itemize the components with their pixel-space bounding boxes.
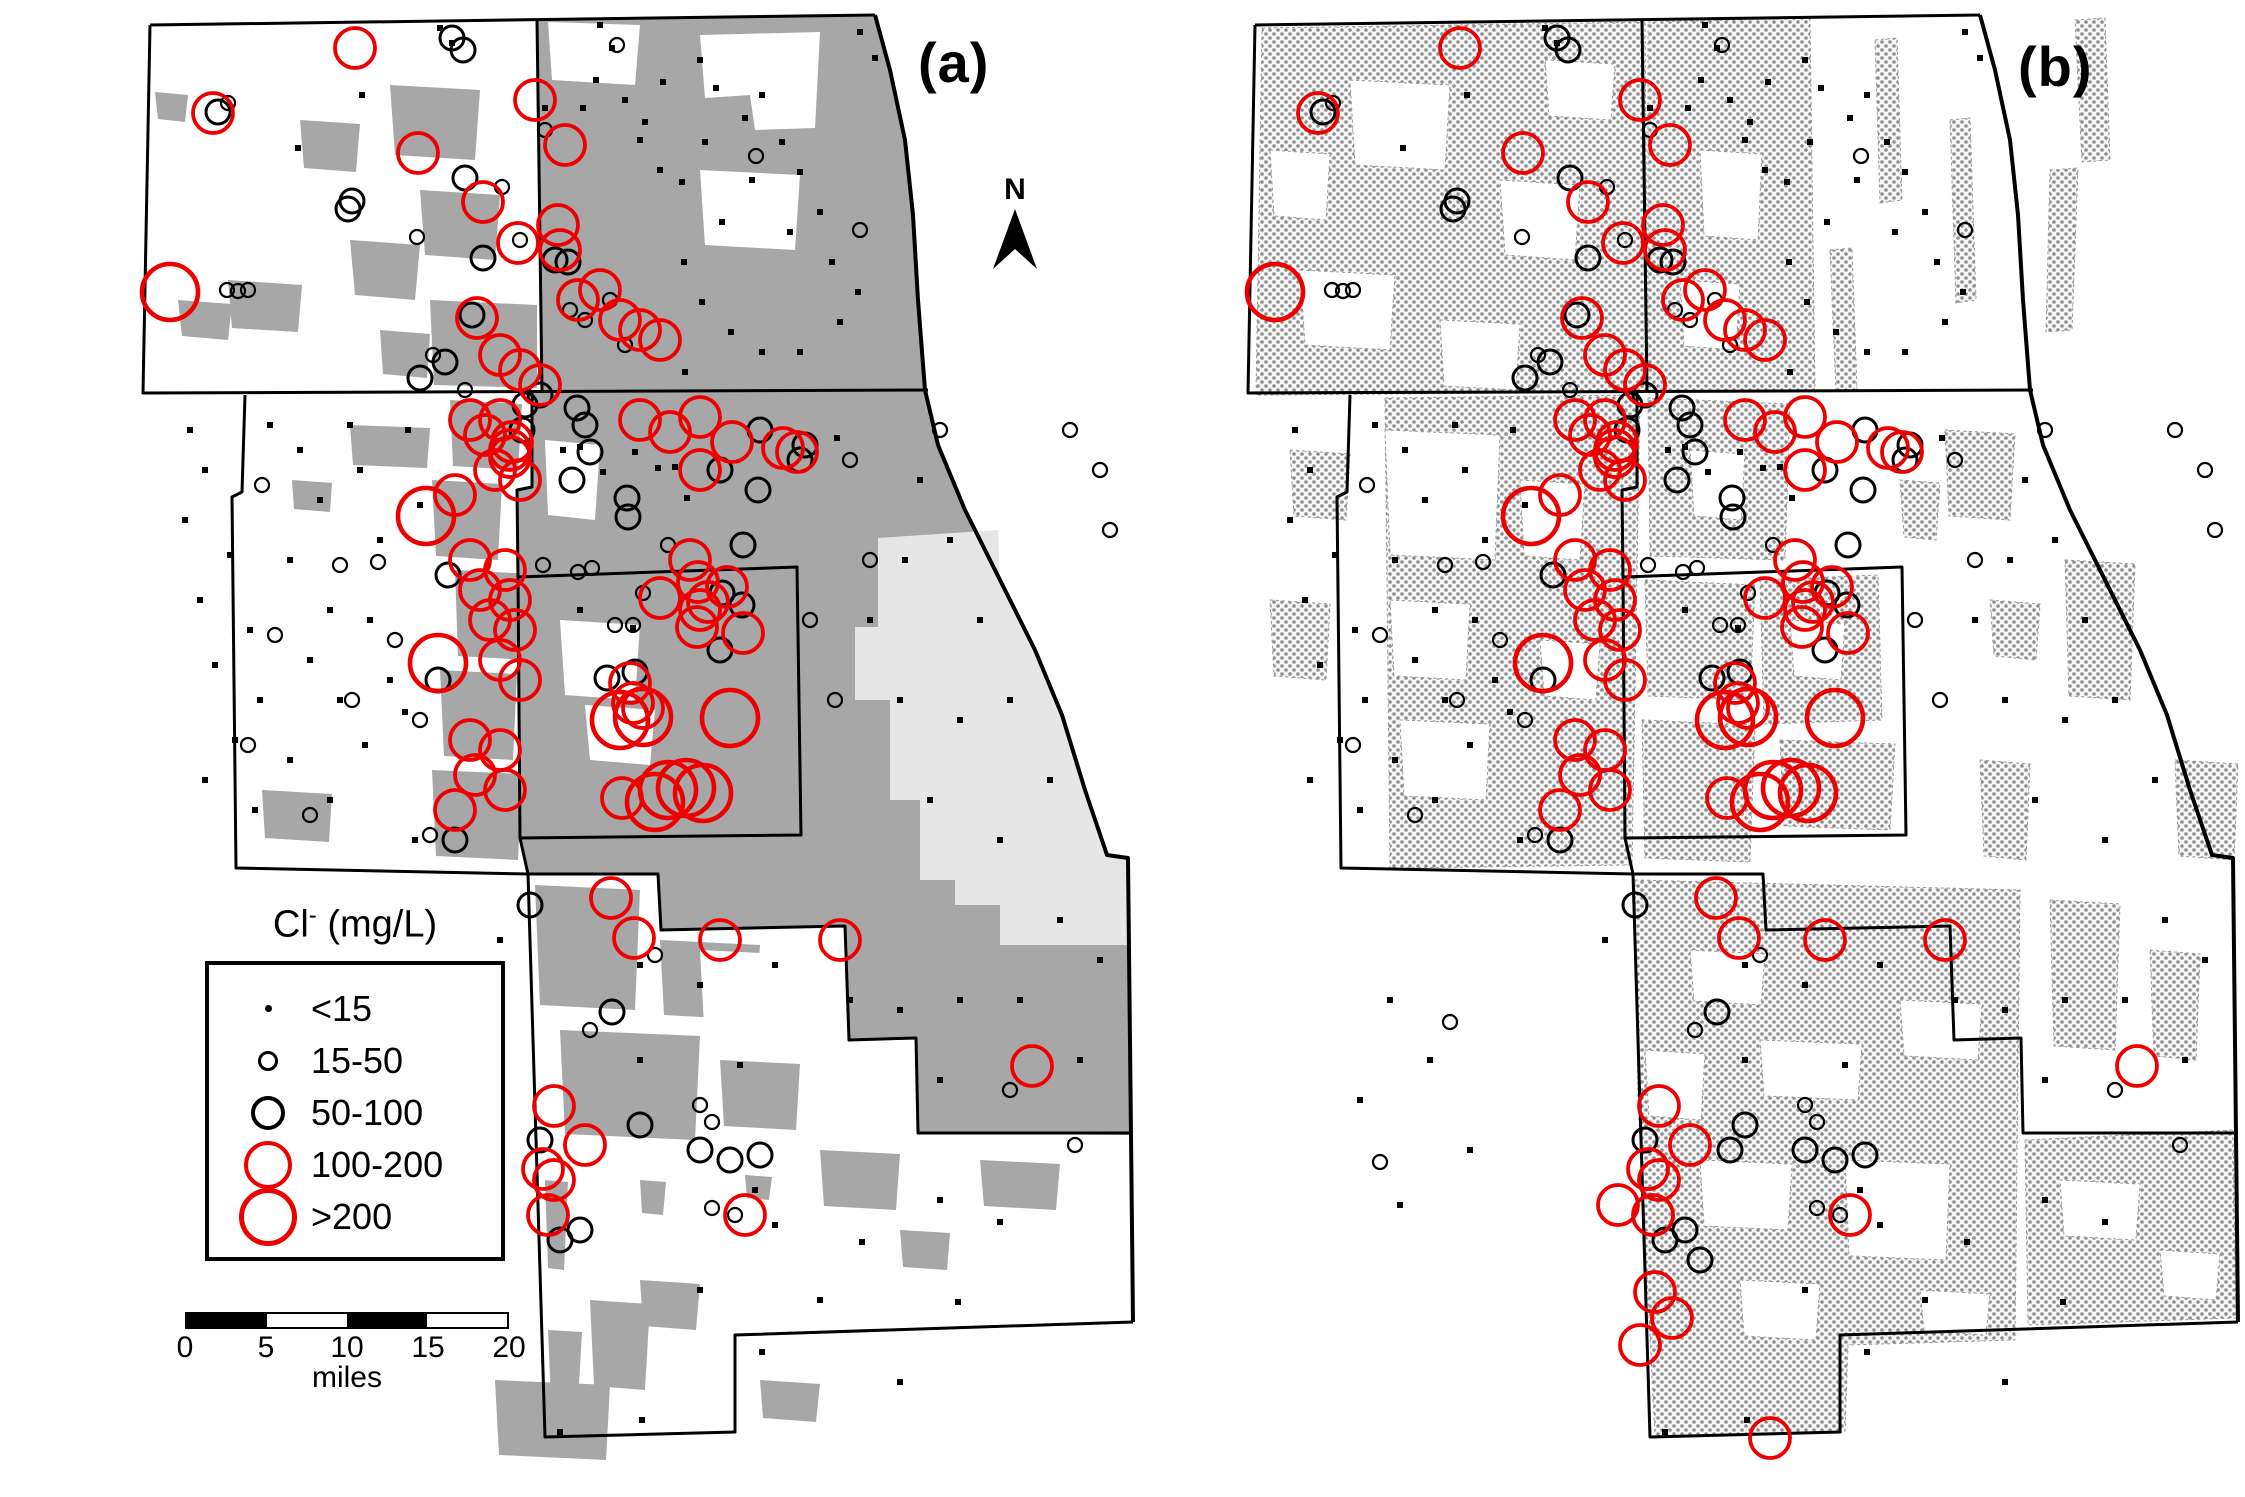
scale-tick: 5 <box>258 1331 275 1365</box>
legend-title: Cl- (mg/L) <box>205 902 505 947</box>
scale-tick: 0 <box>177 1331 194 1365</box>
scale-bar-unit: miles <box>185 1361 509 1395</box>
legend-item: <15 <box>225 983 491 1035</box>
scale-bar-segments <box>185 1312 509 1329</box>
scale-tick: 20 <box>492 1331 525 1365</box>
scale-tick: 10 <box>330 1331 363 1365</box>
legend-item-label: 15-50 <box>311 1040 403 1082</box>
legend-item: 50-100 <box>225 1087 491 1139</box>
map-svg <box>0 0 2245 1497</box>
legend-symbol-large-red-circle-icon <box>239 1188 297 1246</box>
north-arrow: N <box>975 175 1055 280</box>
legend-symbol-red-circle-icon <box>244 1141 292 1189</box>
legend-symbol-small-circle-icon <box>258 1051 278 1071</box>
legend-item-label: 50-100 <box>311 1092 423 1134</box>
panel-b-map <box>1247 15 2238 1458</box>
legend-item-label: >200 <box>311 1196 392 1238</box>
legend-symbol-medium-circle-icon <box>251 1096 285 1130</box>
legend-symbol-dot-icon <box>265 1005 272 1012</box>
scale-tick: 15 <box>411 1331 444 1365</box>
legend-item: >200 <box>225 1191 491 1243</box>
legend: Cl- (mg/L) <15 15-50 50-100 100-200 >200 <box>205 902 505 1261</box>
figure: (a) (b) N Cl- (mg/L) <15 15-50 50-100 10 <box>0 0 2245 1497</box>
legend-item-label: <15 <box>311 988 372 1030</box>
scale-bar-ticks: 0 5 10 15 20 <box>185 1329 509 1363</box>
scale-bar: 0 5 10 15 20 miles <box>185 1312 509 1395</box>
panel-a-label: (a) <box>918 30 989 95</box>
panel-b-label: (b) <box>2018 34 2093 99</box>
north-arrow-icon <box>975 205 1055 275</box>
legend-item: 100-200 <box>225 1139 491 1191</box>
legend-box: <15 15-50 50-100 100-200 >200 <box>205 961 505 1261</box>
legend-item: 15-50 <box>225 1035 491 1087</box>
legend-item-label: 100-200 <box>311 1144 443 1186</box>
north-label: N <box>975 175 1055 205</box>
